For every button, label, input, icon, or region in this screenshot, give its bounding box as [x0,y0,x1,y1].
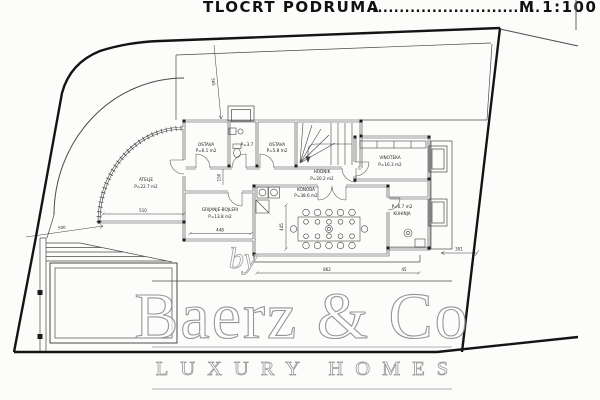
window-wells [429,141,452,249]
door-swings [170,154,400,210]
title-scale: M 1:100 [519,0,597,16]
vinoteka-shelves [360,141,426,148]
room-area-ostava1: P=6.1 m2 [196,148,217,153]
staircase [300,123,352,165]
dim-right: 301 [455,247,463,252]
dim-grijanje-width: 448 [216,228,224,233]
room-label-ostava2: OSTAVA [269,142,285,147]
room-label-konoba: KONOBA [297,187,315,192]
room-area-vinoteka: P=16.3 m2 [378,162,402,167]
room-area-hodnik: P=20.2 m2 [310,176,334,181]
watermark-brand: Baerz & Co [134,280,469,353]
title-dots: ............................... [372,1,541,16]
room-area-konoba: P=38.6 m2 [294,193,318,198]
room-area-wc: P=3.7 [241,142,254,147]
floor-plan-drawing: 510 448 862 45 445 500 301 150 565 ATELJ… [0,0,600,400]
dim-konoba-height: 445 [279,223,284,231]
dining-table [290,209,368,249]
sheet-title: TLOCRT PODRUMA .........................… [203,0,597,30]
drawing-sheet: 510 448 862 45 445 500 301 150 565 ATELJ… [0,0,600,400]
dim-atelje-width: 510 [139,208,147,213]
kitchen-sink [390,229,427,247]
watermark-tagline: LUXURY HOMES [156,358,460,380]
room-label-grijanje: GRIJANJE-BOJLERI [202,207,238,212]
room-label-ostava1: OSTAVA [198,142,214,147]
room-label-hodnik: HODNIK [314,169,331,174]
room-area-grijanje: P=13.8 m2 [208,214,232,219]
dim-konoba-width: 862 [323,267,331,272]
room-label-kuhinja: KUHINJA [393,211,410,216]
stove-counter [256,187,280,213]
dim-pool: 500 [58,224,67,230]
title-text: TLOCRT PODRUMA [203,0,380,16]
room-label-atelje: ATELJE [139,177,153,182]
watermark: by Baerz & Co LUXURY HOMES [134,242,469,389]
dim-corridor: 150 [217,173,222,181]
watermark-by: by [229,242,258,275]
entrance-niche [228,106,254,121]
room-area-kuhinja: P=6.7 m2 [392,204,413,209]
room-area-ostava2: P=5.8 m2 [267,148,288,153]
room-label-vinoteka: VINOTEKA [379,155,400,160]
dim-konoba-offset: 45 [401,267,407,272]
dim-entry: 565 [211,78,217,87]
room-area-atelje: P=22.7 m2 [134,184,158,189]
